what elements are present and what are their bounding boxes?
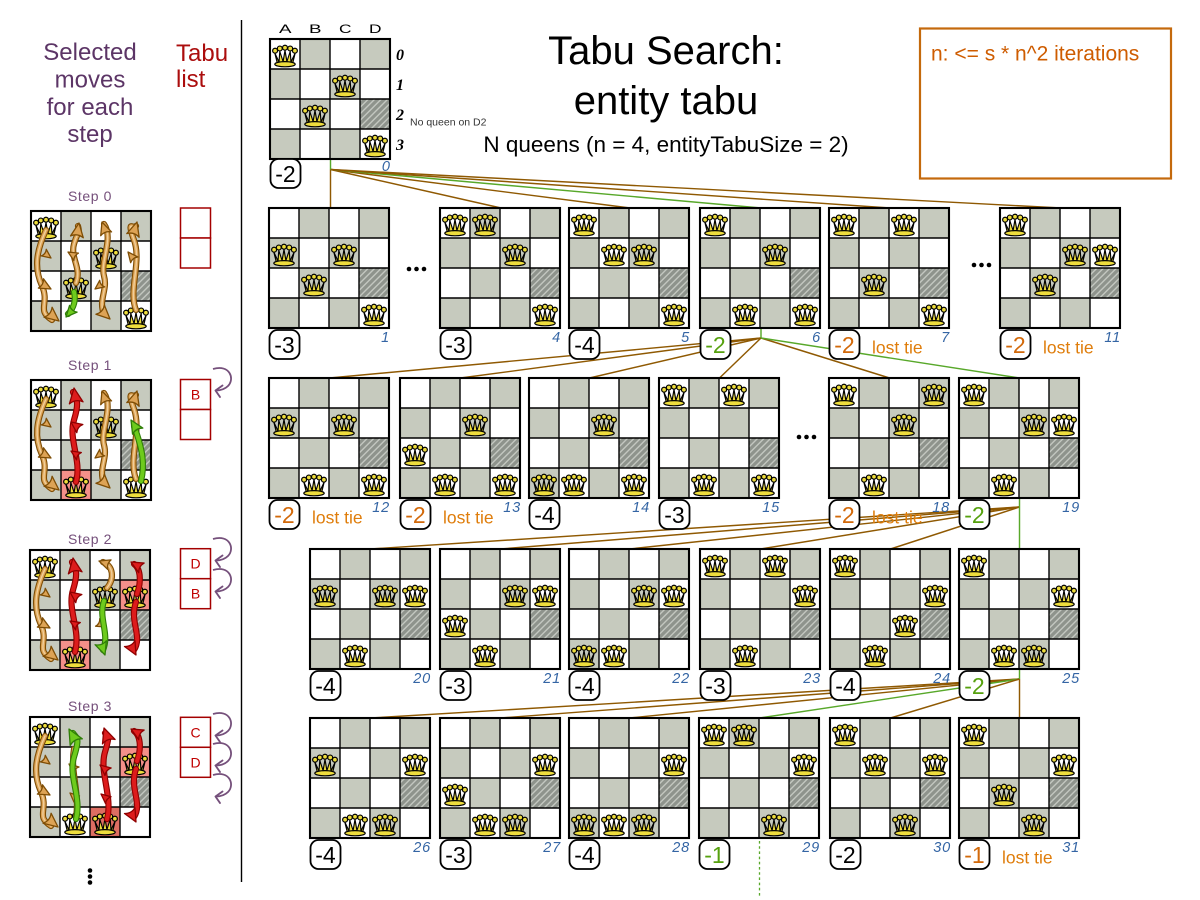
svg-text:C: C	[339, 24, 352, 36]
svg-text:22: 22	[671, 671, 690, 687]
svg-text:20: 20	[412, 671, 431, 687]
svg-text:-2: -2	[964, 502, 984, 528]
svg-text:moves: moves	[55, 67, 126, 94]
svg-text:18: 18	[932, 500, 950, 516]
svg-text:-2: -2	[835, 842, 855, 868]
svg-text:No queen on D2: No queen on D2	[410, 117, 487, 129]
svg-text:N queens (n = 4, entityTabuSiz: N queens (n = 4, entityTabuSize = 2)	[483, 132, 848, 157]
svg-text:-3: -3	[274, 332, 294, 358]
svg-text:23: 23	[802, 671, 821, 687]
svg-text:lost tie: lost tie	[872, 508, 923, 528]
svg-text:C: C	[190, 724, 200, 740]
svg-text:-2: -2	[274, 502, 294, 528]
svg-text:3: 3	[395, 137, 404, 154]
svg-text:25: 25	[1061, 671, 1080, 687]
svg-text:-2: -2	[405, 502, 425, 528]
svg-text:11: 11	[1104, 330, 1121, 346]
svg-text:list: list	[176, 66, 206, 93]
svg-text:28: 28	[671, 840, 690, 856]
svg-text:lost tie: lost tie	[312, 508, 363, 528]
svg-text:-3: -3	[705, 673, 725, 699]
svg-text:n: <= s * n^2 iterations: n: <= s * n^2 iterations	[931, 43, 1139, 66]
svg-text:Step 1: Step 1	[68, 357, 112, 373]
svg-text:B: B	[309, 24, 322, 36]
svg-text:12: 12	[372, 500, 390, 516]
svg-text:-2: -2	[834, 502, 854, 528]
svg-text:15: 15	[762, 500, 780, 516]
svg-text:D: D	[190, 754, 200, 770]
svg-text:-3: -3	[664, 502, 684, 528]
svg-text:A: A	[279, 24, 292, 36]
svg-text:1: 1	[396, 77, 404, 94]
svg-text:-3: -3	[445, 332, 465, 358]
svg-text:0: 0	[382, 159, 390, 175]
svg-text:lost tie: lost tie	[1002, 848, 1053, 868]
svg-text:-2: -2	[275, 161, 295, 187]
svg-text:B: B	[191, 586, 200, 602]
svg-text:Step 3: Step 3	[68, 698, 112, 714]
svg-text:0: 0	[396, 47, 404, 64]
svg-text:D: D	[369, 24, 382, 36]
svg-text:1: 1	[381, 330, 390, 346]
svg-text:for each: for each	[47, 94, 134, 121]
svg-text:6: 6	[812, 330, 821, 346]
svg-text:-4: -4	[835, 673, 856, 699]
svg-text:entity tabu: entity tabu	[574, 79, 759, 123]
svg-text:Tabu: Tabu	[176, 40, 228, 67]
svg-text:4: 4	[552, 330, 561, 346]
svg-text:Step 0: Step 0	[68, 188, 112, 204]
svg-text:step: step	[67, 121, 112, 148]
svg-text:-4: -4	[574, 332, 595, 358]
svg-text:lost tie: lost tie	[1043, 338, 1094, 358]
svg-text:lost tie: lost tie	[443, 508, 494, 528]
svg-text:-3: -3	[445, 842, 465, 868]
svg-text:lost tie: lost tie	[872, 338, 923, 358]
svg-text:2: 2	[395, 107, 404, 124]
svg-text:Tabu Search:: Tabu Search:	[548, 29, 784, 73]
svg-text:-4: -4	[315, 673, 336, 699]
svg-text:-2: -2	[834, 332, 854, 358]
svg-text:-3: -3	[445, 673, 465, 699]
svg-text:Step 2: Step 2	[68, 531, 112, 547]
svg-text:-1: -1	[704, 842, 724, 868]
svg-text:-4: -4	[574, 842, 595, 868]
svg-text:-2: -2	[1005, 332, 1025, 358]
svg-text:7: 7	[941, 330, 950, 346]
svg-text:13: 13	[503, 500, 521, 516]
svg-text:5: 5	[681, 330, 690, 346]
svg-text:21: 21	[542, 671, 561, 687]
svg-text:D: D	[190, 556, 200, 572]
svg-text:30: 30	[933, 840, 951, 856]
svg-text:27: 27	[542, 840, 561, 856]
svg-text:31: 31	[1062, 840, 1080, 856]
svg-text:19: 19	[1062, 500, 1080, 516]
svg-text:-4: -4	[315, 842, 336, 868]
svg-text:B: B	[191, 387, 200, 403]
svg-text:-4: -4	[534, 502, 555, 528]
svg-text:-1: -1	[964, 842, 984, 868]
svg-text:-2: -2	[705, 332, 725, 358]
svg-text:-4: -4	[574, 673, 595, 699]
svg-text:26: 26	[412, 840, 431, 856]
svg-text:Selected: Selected	[43, 39, 136, 66]
svg-text:24: 24	[932, 671, 951, 687]
svg-text:14: 14	[632, 500, 650, 516]
svg-text:-2: -2	[964, 673, 984, 699]
svg-text:29: 29	[801, 840, 820, 856]
